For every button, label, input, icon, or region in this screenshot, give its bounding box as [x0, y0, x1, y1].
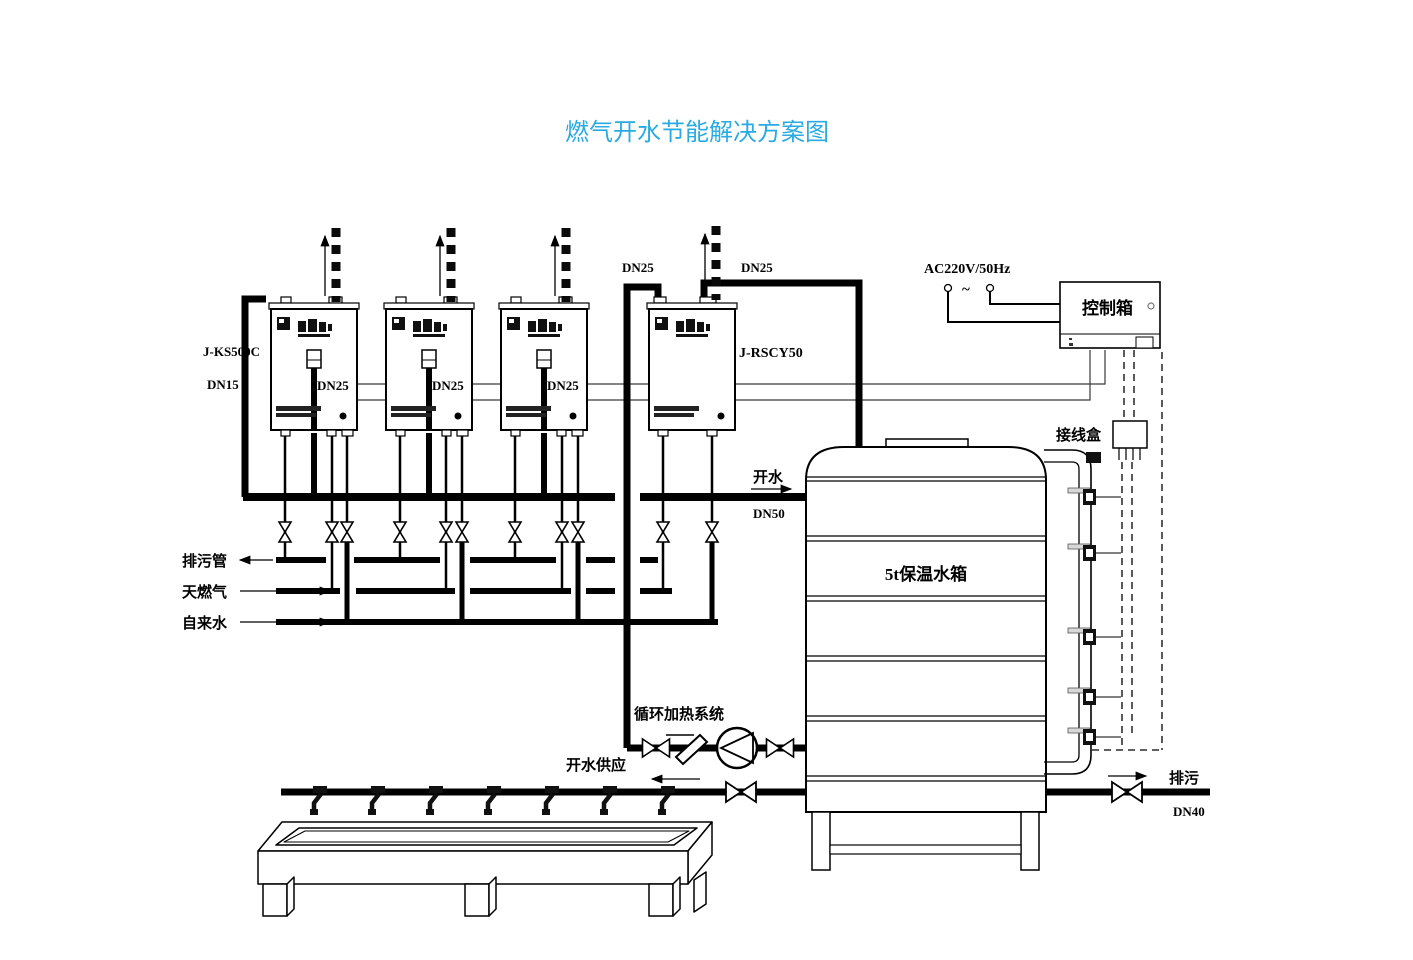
- valve-icon: [726, 782, 756, 802]
- hot-water-size-label: DN50: [753, 506, 785, 521]
- ac-symbol: ~: [962, 282, 970, 298]
- level-sensor-icon: [1068, 728, 1121, 745]
- valve-icon: [657, 522, 669, 542]
- valve-icon: [456, 522, 468, 542]
- boiler-outlet-size: DN25: [547, 378, 579, 393]
- valve-icon: [279, 522, 291, 542]
- tank-leg: [812, 812, 830, 870]
- power-supply: AC220V/50Hz ~: [924, 262, 1060, 322]
- circulation-heater-unit: [647, 297, 737, 436]
- flue-icon: [325, 228, 336, 302]
- circulation-system-label: 循环加热系统: [634, 705, 724, 723]
- level-sensor-icon: [1068, 488, 1121, 505]
- heater-inlet-size-label: DN15: [207, 377, 239, 392]
- terminal-icon: [945, 285, 952, 292]
- heater-model-label: J-KS500C: [203, 344, 260, 359]
- diagram-page: 燃气开水节能解决方案图: [0, 0, 1413, 960]
- blowdown-size-label: DN40: [1173, 804, 1205, 819]
- signal-wires-dashed: [1092, 350, 1162, 750]
- junction-box-label: 接线盒: [1056, 426, 1102, 444]
- tank-label: 5t保温水箱: [885, 564, 967, 584]
- control-box-label: 控制箱: [1082, 298, 1133, 318]
- circulation-heater-model-label: J-RSCY50: [739, 346, 803, 361]
- page-title: 燃气开水节能解决方案图: [565, 119, 829, 146]
- boiler-outlet-size: DN25: [432, 378, 464, 393]
- boiler-unit: DN25: [384, 297, 474, 436]
- level-sensor-icon: [1068, 688, 1121, 705]
- valve-icon: [643, 739, 670, 757]
- dn25-left-label: DN25: [622, 260, 654, 275]
- boiler-units: DN25 DN25 DN25: [269, 297, 737, 436]
- valve-icon: [440, 522, 452, 542]
- valve-icon: [1112, 782, 1142, 802]
- gauge-cap: [1086, 452, 1101, 463]
- valve-icon: [572, 522, 584, 542]
- tank-leg: [1021, 812, 1039, 870]
- valve-icon: [394, 522, 406, 542]
- hot-water-supply-label: 开水供应: [566, 756, 626, 774]
- valve-icon: [556, 522, 568, 542]
- valve-icon: [341, 522, 353, 542]
- cold-inlet-pipe: [245, 299, 266, 497]
- boiler-unit: DN25: [499, 297, 589, 436]
- valve-icon: [326, 522, 338, 542]
- dn25-right-label: DN25: [741, 260, 773, 275]
- control-box: 控制箱: [1060, 282, 1160, 348]
- terminal-icon: [987, 285, 994, 292]
- drain-pipe-label: 排污管: [182, 552, 227, 570]
- flue-icon: [555, 228, 566, 302]
- flue-icon: [440, 228, 451, 302]
- level-gauge: [1044, 450, 1121, 774]
- power-label: AC220V/50Hz: [924, 262, 1010, 277]
- junction-box: 接线盒: [1056, 421, 1147, 460]
- trough-sink: [258, 822, 712, 916]
- valve-icon: [509, 522, 521, 542]
- boiler-outlet-size: DN25: [317, 378, 349, 393]
- valve-icon: [767, 739, 794, 757]
- valve-icon: [706, 522, 718, 542]
- storage-tank: 5t保温水箱: [806, 439, 1046, 870]
- level-sensor-icon: [1068, 628, 1121, 645]
- piping-diagram: 燃气开水节能解决方案图: [0, 0, 1413, 960]
- service-lines: [240, 560, 718, 622]
- shutoff-valves: [279, 522, 718, 542]
- tap-water-label: 自来水: [182, 614, 228, 632]
- blowdown-label: 排污: [1169, 769, 1199, 787]
- level-sensor-icon: [1068, 544, 1121, 561]
- gas-label: 天燃气: [182, 583, 227, 601]
- boiler-unit: DN25: [269, 297, 359, 436]
- tank-leg-brace: [830, 845, 1021, 854]
- hot-water-label: 开水: [753, 468, 784, 486]
